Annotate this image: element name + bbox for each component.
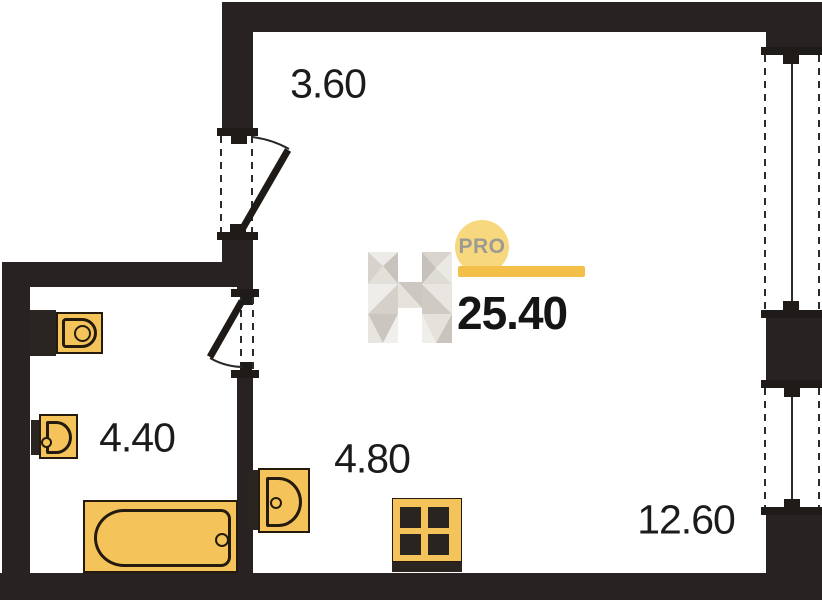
entry-door-hinge-tab-bottom [230,224,246,232]
bathroom-door-leaf [210,301,242,357]
stove-burner [428,534,449,555]
entry-door-opening-dash-right [251,136,253,232]
washbasin-faucet-circle [41,437,52,448]
toilet-cistern [30,310,56,356]
window1-glass-line [791,64,793,303]
window2-glass-line [791,397,793,500]
window2-tab-top [784,388,800,397]
logo-pro-badge-label: PRO [458,235,505,259]
wall-bathroom-top [2,262,253,287]
window2-dash-left [764,388,766,507]
bathroom-door-opening-dash-left [240,297,242,370]
stove-burner [428,507,449,528]
wall-window-pier [766,318,822,380]
toilet-icon [56,312,103,354]
bathroom-door-hinge-tab-bottom [240,362,252,370]
room-label-living: 12.60 [637,497,735,544]
bathroom-door-swing-arc [210,358,243,367]
entry-door-opening-dash-left [220,136,222,232]
window2-tab-bottom [784,499,800,507]
stove-burner [400,507,421,528]
window1-dash-right [818,55,820,310]
entry-door-hinge-tab-top [231,136,247,144]
entry-door-leaf [240,150,288,233]
floor-plan: PRO 25.40 3.60 4.40 4.80 12.60 [0,0,822,600]
stove-burner [400,534,421,555]
entry-door-sill-top [217,128,258,136]
kitchen-sink-faucet-circle [270,497,282,509]
window1-dash-left [764,55,766,310]
room-label-kitchen: 4.80 [334,436,410,483]
toilet-flush-circle [74,325,91,342]
window1-tab-bottom [783,301,799,310]
window2-sill-bottom [761,507,822,515]
room-label-bathroom: 4.40 [99,415,175,462]
window1-sill-top [761,47,822,55]
washbasin-icon [39,414,78,459]
window2-dash-right [818,388,820,507]
window1-tab-top [783,55,799,64]
logo-h-icon [366,252,454,343]
wall-entry-lower [222,240,253,264]
window2-sill-top [761,380,822,388]
wall-top [222,2,822,32]
bathroom-door-opening-dash-right [252,297,254,370]
wall-bathroom-left [2,262,30,600]
room-label-hallway: 3.60 [290,61,366,108]
bathroom-door-sill-top [231,289,259,297]
wall-window-corner-bottom-right [766,515,822,600]
entry-door-swing-arc [252,137,289,149]
total-area-label: 25.40 [457,286,567,340]
wall-bottom [0,573,822,600]
wall-window-corner-top-right [766,2,822,47]
kitchen-sink-icon [258,468,310,533]
stove-icon [392,498,462,562]
bathroom-door-sill-bottom [231,370,259,378]
entry-door-sill-bottom [217,232,258,240]
stove-base [392,562,462,572]
bathtub-basin [94,509,231,567]
bathtub-drain-circle [215,533,229,547]
window1-sill-bottom [761,310,822,318]
wall-entry-upper [222,2,253,128]
bathtub-icon [83,500,238,573]
logo-underline-bar [458,266,585,277]
